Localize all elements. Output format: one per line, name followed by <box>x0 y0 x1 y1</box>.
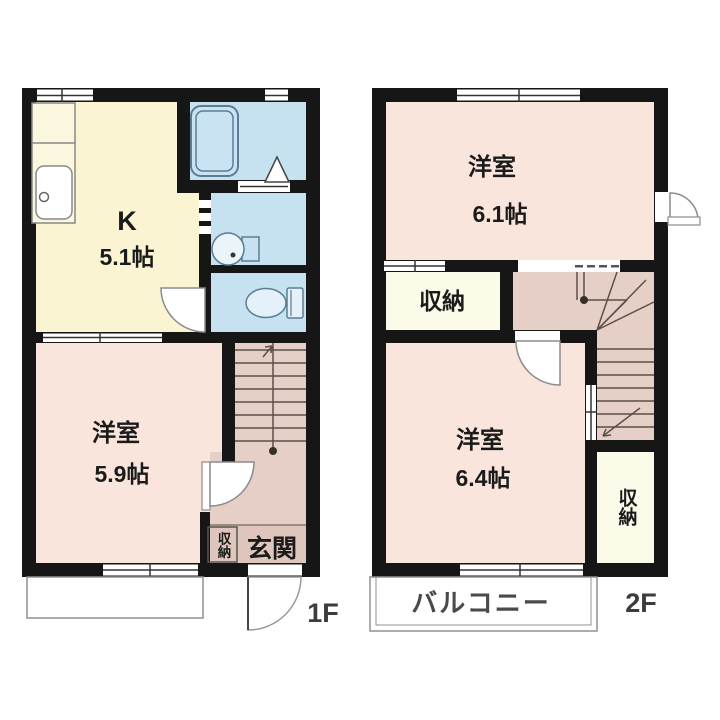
western-room-1f-label: 洋室 <box>92 419 140 447</box>
western-room-1f-area-label: 5.9帖 <box>95 461 150 487</box>
entrance-label: 玄関 <box>247 534 297 563</box>
room-2f-entry-door-leaf <box>668 217 700 225</box>
stairs-2f-floor <box>597 330 654 440</box>
floor-1-plan: K 5.1帖 洋室 5.9帖 玄関 収納 1F <box>22 88 339 630</box>
front-door-swing <box>248 577 301 630</box>
floor-2-plan: バルコニー 洋室 6.1帖 収納 洋室 6.4帖 収納 2F <box>370 88 700 631</box>
western-room-2f-upper-area-label: 6.1帖 <box>473 201 528 227</box>
closet-2f-upper-label: 収納 <box>419 288 465 314</box>
kitchen-area-label: 5.1帖 <box>100 244 155 270</box>
floorplan-drawing: K 5.1帖 洋室 5.9帖 玄関 収納 1F <box>0 0 720 720</box>
balcony: バルコニー <box>370 577 597 631</box>
kitchen-label: K <box>117 206 137 236</box>
stairs-2f-dot <box>580 296 588 304</box>
western-room-2f-lower-area-label: 6.4帖 <box>456 465 511 491</box>
balcony-label: バルコニー <box>411 588 550 618</box>
western-room-2f-upper-floor <box>386 102 654 260</box>
porch-outline <box>27 577 203 618</box>
bathtub <box>191 106 238 176</box>
toilet-bowl <box>246 289 286 318</box>
western-room-2f-upper-label: 洋室 <box>468 153 516 181</box>
stairs-1f-floor <box>235 343 306 452</box>
toilet-tank <box>287 288 303 318</box>
stairs-1f-start-dot <box>269 447 277 455</box>
kitchen-faucet-icon <box>40 193 49 202</box>
closet-2f-lower-label: 収納 <box>616 488 638 526</box>
floor-1-label: 1F <box>307 598 339 628</box>
western-room-2f-lower-label: 洋室 <box>456 426 504 454</box>
western-room-1f-floor <box>36 343 222 563</box>
floor-2-label: 2F <box>625 588 657 618</box>
entrance-closet-label: 収納 <box>216 531 232 560</box>
wash-basin <box>212 233 244 265</box>
floorplan-page: K 5.1帖 洋室 5.9帖 玄関 収納 1F <box>0 0 720 720</box>
